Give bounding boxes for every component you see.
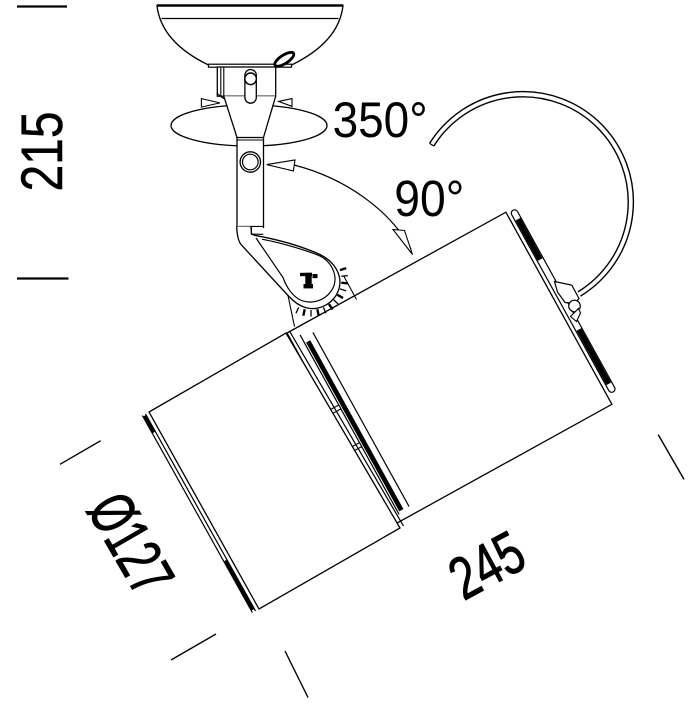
- svg-text:90°: 90°: [394, 170, 464, 227]
- svg-text:215: 215: [10, 112, 75, 192]
- svg-text:350°: 350°: [333, 92, 428, 148]
